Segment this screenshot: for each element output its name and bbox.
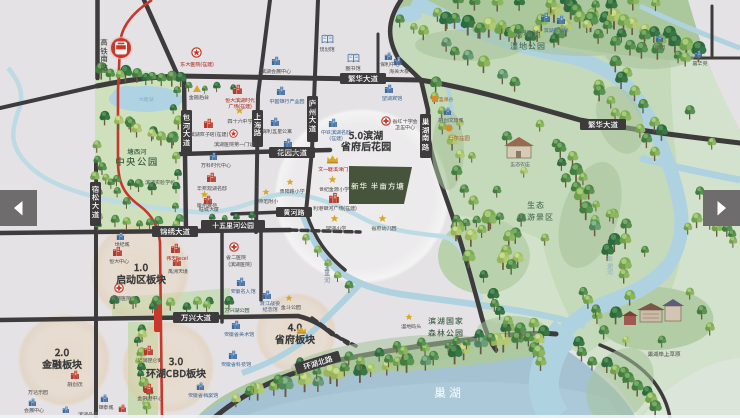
svg-text:省二医院: 省二医院 <box>225 254 246 261</box>
svg-text:滨湖医院第一门诊: 滨湖医院第一门诊 <box>214 141 255 148</box>
svg-text:图书馆: 图书馆 <box>345 65 361 72</box>
svg-text:启动区板块: 启动区板块 <box>116 271 167 286</box>
svg-text:望湖小学: 望湖小学 <box>325 225 346 232</box>
svg-text:温泉谷: 温泉谷 <box>437 96 453 103</box>
svg-text:安徽省档案馆: 安徽省档案馆 <box>188 392 219 399</box>
svg-text:森林公园: 森林公园 <box>428 328 464 339</box>
svg-text:锦绣大道: 锦绣大道 <box>160 227 190 238</box>
svg-text:(滨湖医院): (滨湖医院) <box>228 261 252 268</box>
svg-text:世纪城: 世纪城 <box>114 241 129 248</box>
svg-text:万达乐园: 万达乐园 <box>27 389 48 396</box>
svg-text:安徽名人馆: 安徽名人馆 <box>230 288 256 295</box>
svg-text:规划馆: 规划馆 <box>319 46 335 53</box>
svg-text:宿松大道: 宿松大道 <box>90 185 101 219</box>
svg-text:省府后花园: 省府后花园 <box>340 138 391 153</box>
svg-text:十五里河: 十五里河 <box>323 258 332 282</box>
svg-text:华润昆仑御: 华润昆仑御 <box>137 357 162 364</box>
svg-text:庐州大道: 庐州大道 <box>307 99 318 133</box>
svg-text:安徽省科技馆: 安徽省科技馆 <box>221 361 252 368</box>
svg-text:贵阳路小学: 贵阳路小学 <box>279 188 304 195</box>
svg-text:旺城大厦: 旺城大厦 <box>199 206 219 213</box>
svg-text:安徽省美术馆: 安徽省美术馆 <box>224 331 255 338</box>
svg-text:保利五星公寓: 保利五星公寓 <box>262 128 292 135</box>
svg-text:东大医院(在建): 东大医院(在建) <box>179 61 214 68</box>
svg-text:华邦观湖名邸: 华邦观湖名邸 <box>197 185 227 192</box>
svg-text:滨湖会展中心: 滨湖会展中心 <box>261 68 291 75</box>
svg-text:恒大中心: 恒大中心 <box>109 258 129 265</box>
svg-text:方兴湖公园: 方兴湖公园 <box>223 307 249 314</box>
svg-text:高铁南站: 高铁南站 <box>99 38 110 72</box>
svg-text:金融港中心: 金融港中心 <box>137 395 162 402</box>
svg-text:禹洲天境: 禹洲天境 <box>168 268 188 275</box>
svg-text:金斗公园: 金斗公园 <box>281 304 301 311</box>
svg-text:康园: 康园 <box>654 44 665 51</box>
svg-text:安粮双銮湾: 安粮双銮湾 <box>277 149 302 156</box>
svg-text:文一塘溪津门: 文一塘溪津门 <box>318 166 348 173</box>
svg-text:师范附小: 师范附小 <box>258 198 278 205</box>
svg-text:保利中心: 保利中心 <box>380 61 400 68</box>
svg-text:新华 半亩方塘: 新华 半亩方塘 <box>351 181 405 192</box>
svg-text:万科时代中心: 万科时代中心 <box>200 162 231 169</box>
svg-text:省府幼儿园: 省府幼儿园 <box>370 225 396 232</box>
svg-text:巢湖: 巢湖 <box>434 384 464 401</box>
svg-text:巢湖岸上草原: 巢湖岸上草原 <box>647 350 681 358</box>
svg-text:会展中心: 会展中心 <box>24 407 44 414</box>
svg-text:繁华大道: 繁华大道 <box>588 120 618 131</box>
svg-text:省府板块: 省府板块 <box>274 331 316 346</box>
svg-text:十五里河公园: 十五里河公园 <box>212 221 254 231</box>
svg-text:南淝河: 南淝河 <box>606 256 615 274</box>
svg-text:繁华大道: 繁华大道 <box>348 74 378 85</box>
svg-text:纪念馆: 纪念馆 <box>261 306 278 313</box>
svg-text:卫生中心: 卫生中心 <box>395 124 415 131</box>
svg-text:中国银行产业园: 中国银行产业园 <box>269 98 304 105</box>
svg-text:望湖宾馆: 望湖宾馆 <box>381 95 403 102</box>
svg-text:生态: 生态 <box>527 200 545 211</box>
svg-text:生态农庄: 生态农庄 <box>510 161 530 168</box>
svg-text:海关大楼: 海关大楼 <box>389 68 410 75</box>
svg-text:大塘湖: 大塘湖 <box>138 96 153 103</box>
svg-text:黄河路: 黄河路 <box>284 208 305 218</box>
svg-text:金融板块: 金融板块 <box>41 356 83 371</box>
svg-text:四十六中学: 四十六中学 <box>227 118 252 125</box>
svg-text:中央公园: 中央公园 <box>115 154 159 168</box>
svg-text:融创茂: 融创茂 <box>67 381 83 388</box>
svg-text:旅游景区: 旅游景区 <box>518 212 554 223</box>
svg-text:滨湖医院: 滨湖医院 <box>111 295 131 302</box>
svg-text:包河大道: 包河大道 <box>181 113 192 147</box>
svg-text:银泰城: 银泰城 <box>98 404 113 411</box>
svg-text:世纪金源小学: 世纪金源小学 <box>319 186 349 193</box>
svg-text:滨湖实验学校: 滨湖实验学校 <box>145 179 176 186</box>
svg-text:融创文旅城: 融创文旅城 <box>438 117 463 124</box>
svg-text:滨湖国家: 滨湖国家 <box>428 316 464 327</box>
svg-text:(在建): (在建) <box>329 135 343 142</box>
svg-text:环湖CBD板块: 环湖CBD板块 <box>145 365 207 380</box>
svg-text:湿地公园: 湿地公园 <box>510 41 546 52</box>
svg-text:湿地码头: 湿地码头 <box>401 323 421 330</box>
svg-text:玛尔庄园: 玛尔庄园 <box>448 134 471 142</box>
svg-text:金融后台: 金融后台 <box>189 94 209 101</box>
svg-text:嘉华苑: 嘉华苑 <box>691 60 707 67</box>
svg-text:万兴大道: 万兴大道 <box>180 313 211 324</box>
svg-text:巢湖南路: 巢湖南路 <box>420 117 431 152</box>
svg-text:龙栖地: 龙栖地 <box>515 29 542 40</box>
svg-text:利港银河广场(在建): 利港银河广场(在建) <box>313 205 357 212</box>
svg-text:滨湖双子塔(在建): 滨湖双子塔(在建) <box>190 131 229 138</box>
svg-text:滨湖新地标: 滨湖新地标 <box>543 27 569 34</box>
